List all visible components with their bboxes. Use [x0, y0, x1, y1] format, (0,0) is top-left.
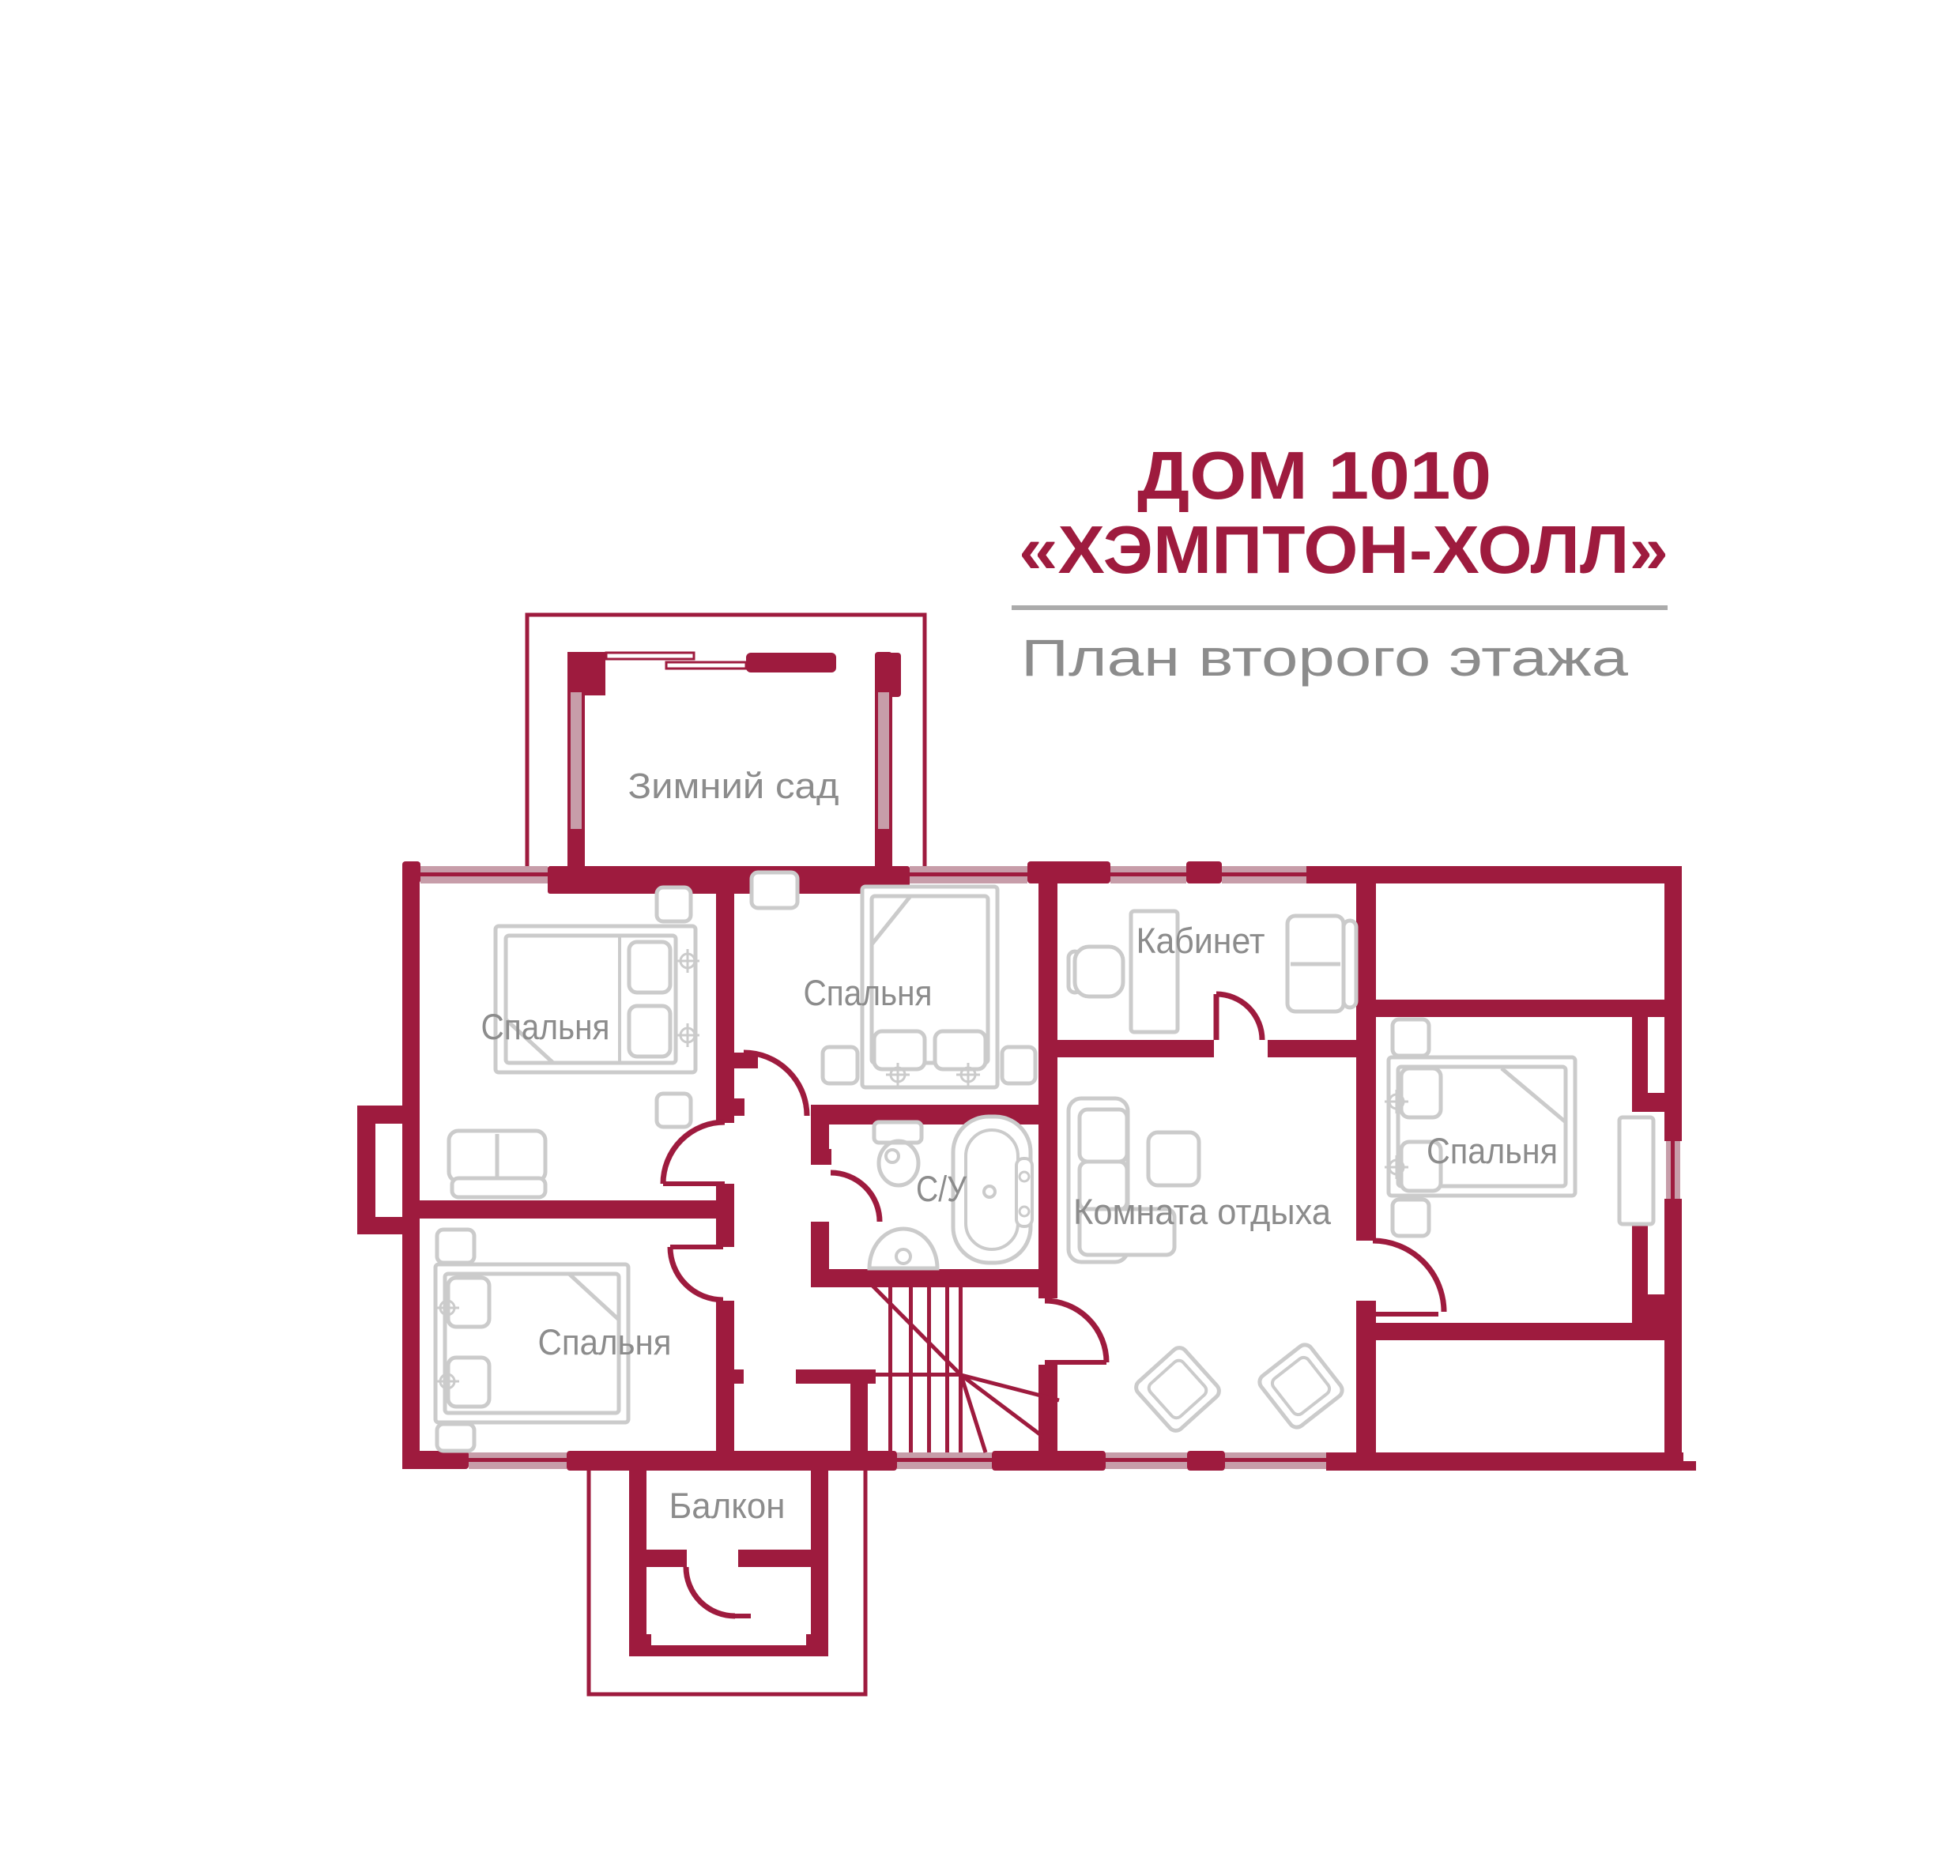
svg-text:Зимний сад: Зимний сад: [628, 766, 839, 806]
svg-text:ДОМ 1010: ДОМ 1010: [1137, 439, 1491, 514]
svg-text:Спальня: Спальня: [1427, 1131, 1558, 1171]
svg-text:Спальня: Спальня: [538, 1322, 672, 1362]
svg-text:Спальня: Спальня: [804, 973, 933, 1013]
svg-text:Кабинет: Кабинет: [1136, 921, 1265, 961]
svg-text:С/У: С/У: [916, 1169, 967, 1209]
svg-text:Спальня: Спальня: [481, 1007, 610, 1047]
svg-text:«ХЭМПТОН-ХОЛЛ»: «ХЭМПТОН-ХОЛЛ»: [1019, 513, 1668, 588]
svg-text:План второго этажа: План второго этажа: [1021, 628, 1628, 687]
svg-text:Комната отдыха: Комната отдыха: [1073, 1192, 1332, 1232]
svg-text:Балкон: Балкон: [669, 1486, 786, 1526]
